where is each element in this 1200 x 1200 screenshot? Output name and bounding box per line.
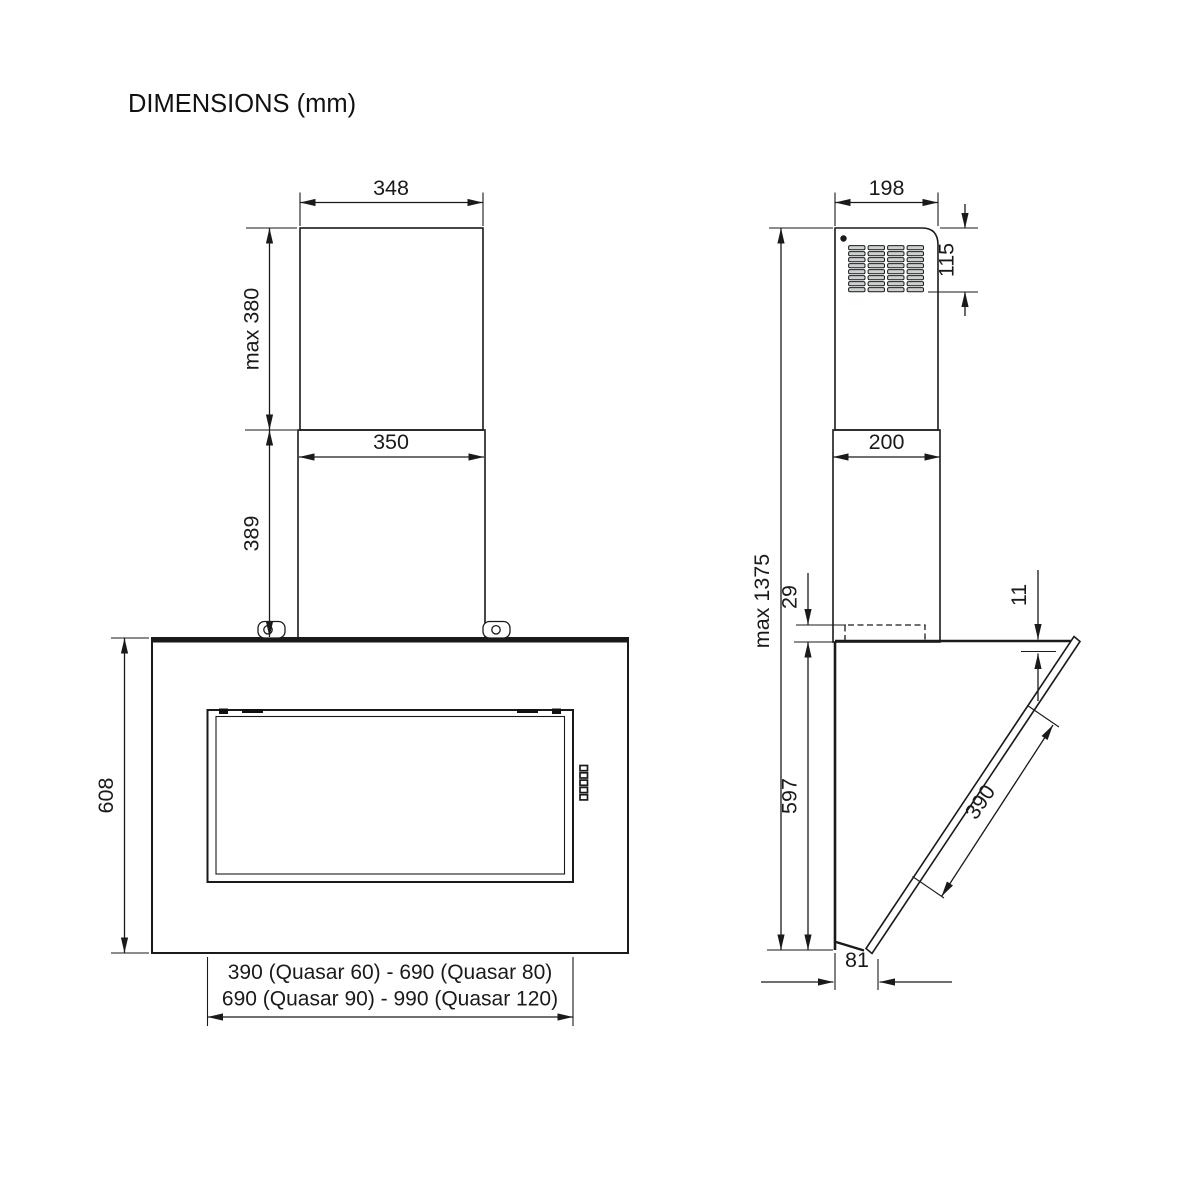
side-chimney-lower-section — [833, 430, 940, 642]
dim-label-200: 200 — [869, 430, 905, 454]
dim-label-597: 597 — [778, 778, 802, 814]
screw-dot — [840, 235, 846, 241]
front-glass-panel-inner — [216, 717, 565, 875]
front-chimney-upper-section — [300, 228, 483, 430]
dim-label-389: 389 — [240, 516, 264, 552]
dim-label-608: 608 — [94, 778, 118, 814]
dim-label-198: 198 — [869, 176, 905, 200]
dim-label-max380: max 380 — [240, 288, 264, 371]
side-dimensions: 198 115 200 max 1375 29 597 — [750, 176, 1059, 990]
front-control-buttons — [580, 766, 588, 800]
front-mount-hole-right — [492, 626, 500, 634]
front-mount-hole-left — [264, 626, 272, 634]
front-glass-clip-far-right — [552, 709, 561, 715]
dim-label-348: 348 — [373, 176, 409, 200]
front-glass-clip-left — [242, 709, 263, 713]
control-button-4 — [580, 787, 588, 792]
dim-label-115: 115 — [935, 243, 959, 277]
dim-label-350: 350 — [373, 430, 409, 454]
front-chimney-lower-section — [298, 430, 485, 638]
control-button-1 — [580, 766, 588, 771]
dim-label-29: 29 — [778, 585, 802, 609]
control-button-3 — [580, 780, 588, 785]
front-glass-clip-right — [517, 709, 538, 713]
control-button-2 — [580, 773, 588, 778]
front-view: 348 max 380 350 389 608 390 (Quasar 60) … — [94, 176, 628, 1026]
page-title: DIMENSIONS (mm) — [128, 90, 356, 118]
dim-label-width-models-2: 690 (Quasar 90) - 990 (Quasar 120) — [222, 988, 558, 1011]
side-hood-body — [835, 637, 1080, 954]
dim-label-width-models-1: 390 (Quasar 60) - 690 (Quasar 80) — [228, 961, 553, 984]
front-hood-body — [152, 622, 628, 954]
side-chimney-hidden-edge — [845, 625, 925, 641]
dim-label-11: 11 — [1007, 584, 1031, 606]
dim-label-81: 81 — [845, 948, 869, 972]
dim-label-max1375: max 1375 — [750, 554, 774, 648]
dim-label-390: 390 — [960, 780, 1000, 823]
dimension-drawing: DIMENSIONS (mm) — [0, 0, 1200, 1200]
dimension-drawing-page: DIMENSIONS (mm) — [0, 0, 1200, 1200]
front-glass-clip-far-left — [219, 709, 228, 715]
control-button-5 — [580, 795, 588, 800]
vent-grille — [848, 245, 926, 293]
side-view: 198 115 200 max 1375 29 597 — [750, 176, 1080, 990]
